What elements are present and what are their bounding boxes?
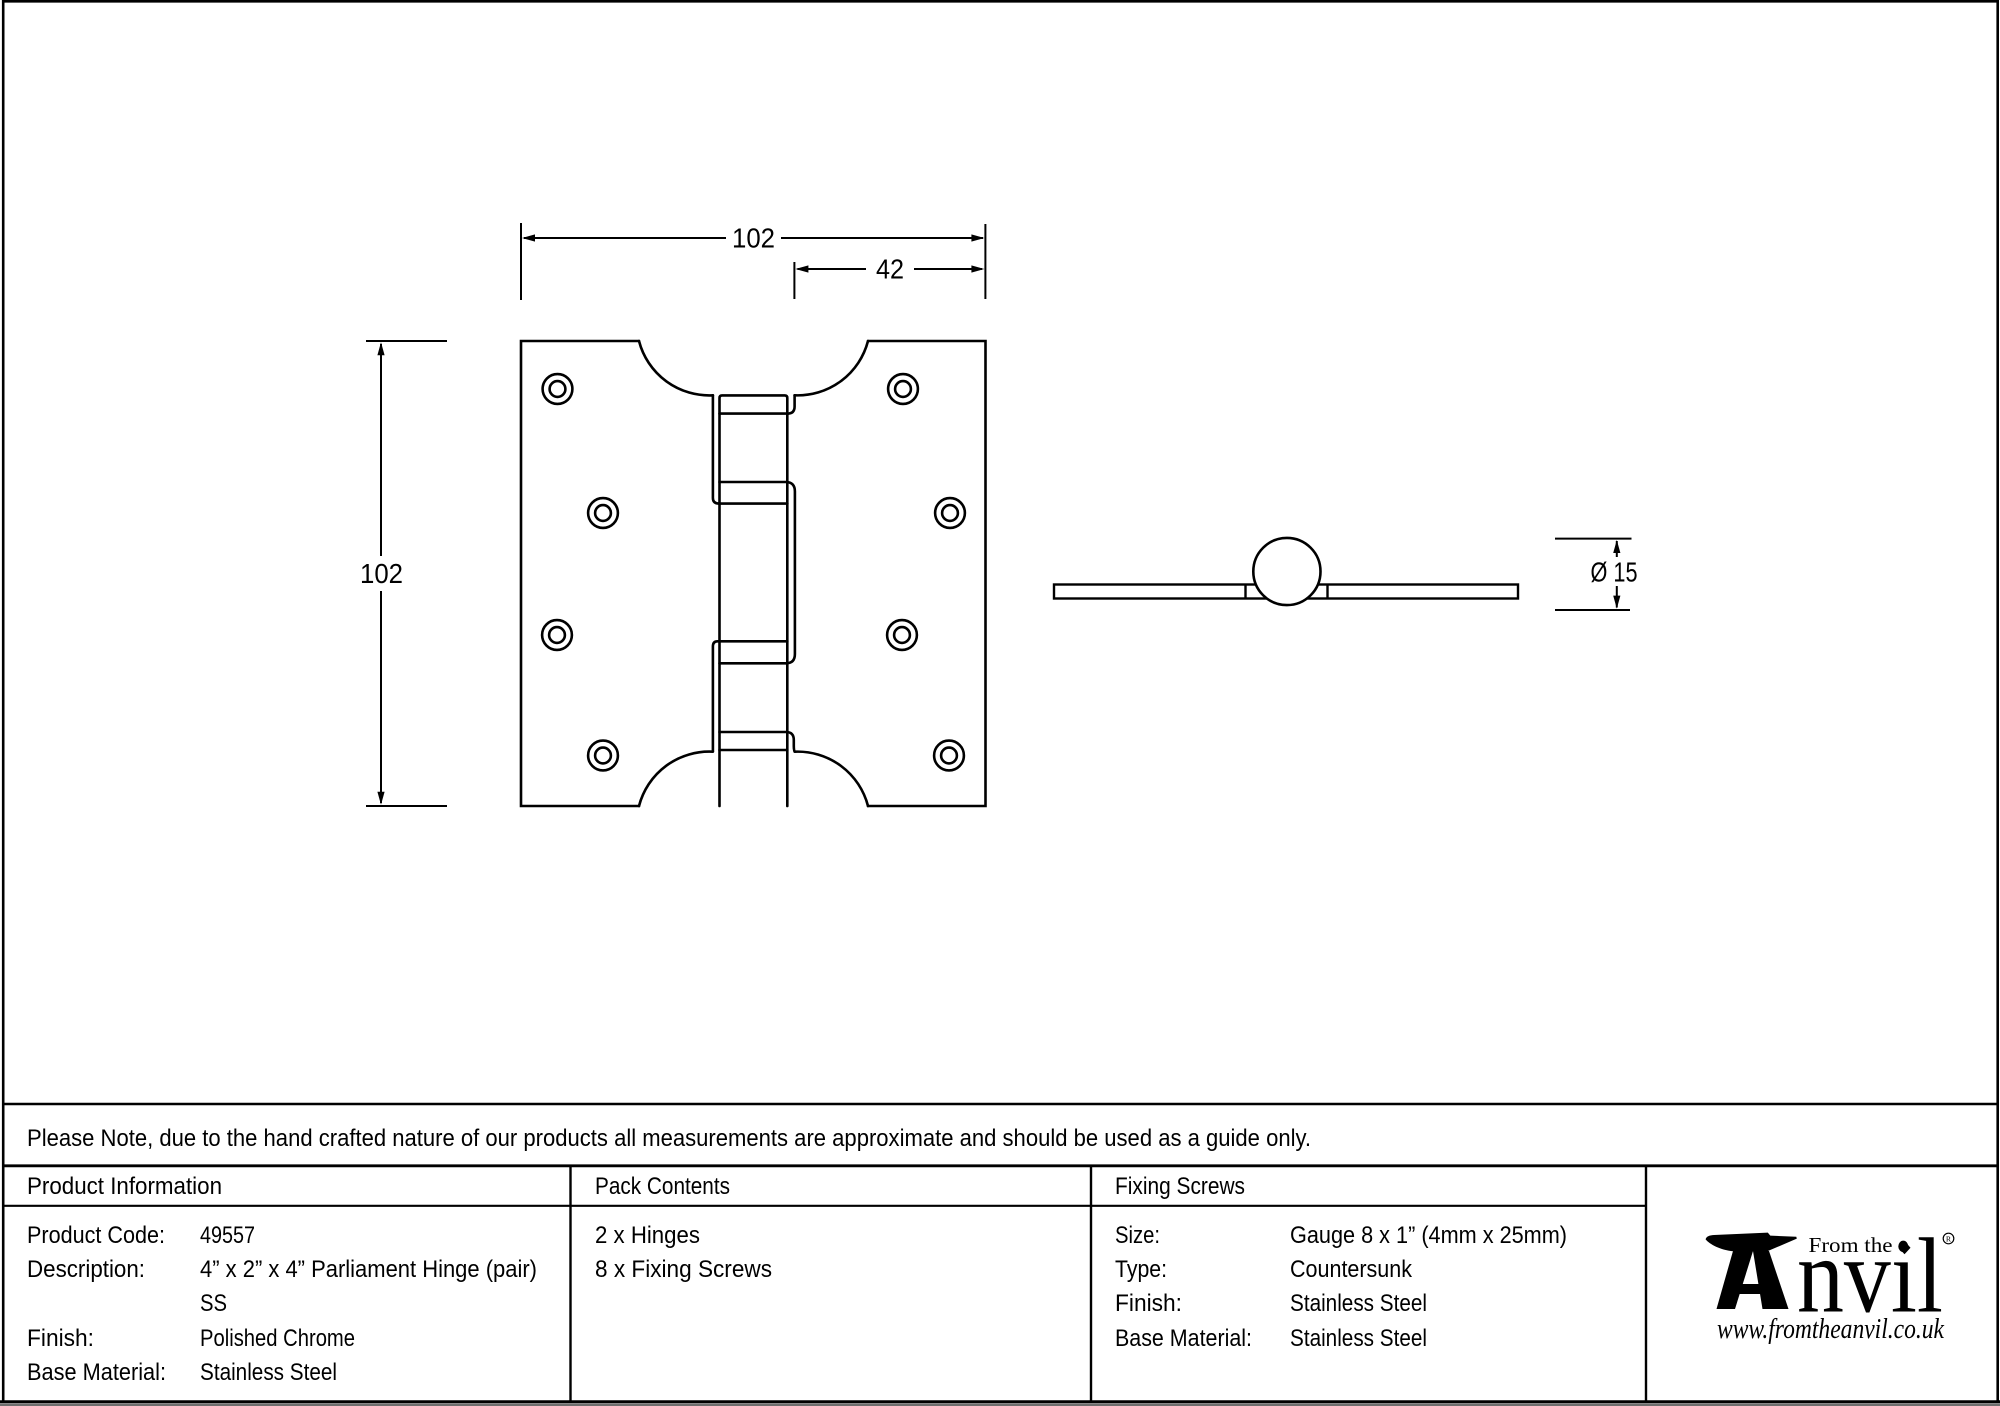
svg-text:8 x Fixing Screws: 8 x Fixing Screws [595,1256,772,1283]
svg-text:Gauge 8 x 1” (4mm x 25mm): Gauge 8 x 1” (4mm x 25mm) [1290,1222,1567,1249]
svg-text:42: 42 [876,254,904,285]
svg-text:Pack Contents: Pack Contents [595,1173,730,1200]
svg-text:Countersunk: Countersunk [1290,1256,1413,1283]
svg-text:Please Note, due to the hand c: Please Note, due to the hand crafted nat… [27,1125,1311,1152]
svg-text:Polished Chrome: Polished Chrome [200,1325,355,1352]
svg-text:Description:: Description: [27,1256,145,1283]
svg-text:4” x 2” x 4” Parliament Hinge: 4” x 2” x 4” Parliament Hinge (pair) [200,1256,537,1283]
svg-text:Size:: Size: [1115,1222,1160,1249]
svg-text:Ø 15: Ø 15 [1591,557,1638,588]
svg-text:R: R [1946,1234,1952,1243]
svg-text:Stainless Steel: Stainless Steel [200,1359,337,1386]
svg-text:Stainless Steel: Stainless Steel [1290,1290,1427,1317]
svg-text:Base Material:: Base Material: [27,1359,166,1386]
svg-text:www.fromtheanvil.co.uk: www.fromtheanvil.co.uk [1717,1313,1945,1345]
svg-text:Product Information: Product Information [27,1173,222,1200]
svg-text:Product Code:: Product Code: [27,1222,165,1249]
svg-text:Finish:: Finish: [27,1325,94,1352]
svg-text:Base Material:: Base Material: [1115,1325,1252,1352]
svg-text:102: 102 [360,558,403,589]
svg-text:Stainless Steel: Stainless Steel [1290,1325,1427,1352]
svg-text:Finish:: Finish: [1115,1290,1182,1317]
svg-text:Type:: Type: [1115,1256,1167,1283]
svg-text:SS: SS [200,1290,227,1317]
svg-text:49557: 49557 [200,1222,255,1249]
svg-text:Fixing Screws: Fixing Screws [1115,1173,1245,1200]
svg-text:2 x Hinges: 2 x Hinges [595,1222,700,1249]
svg-text:102: 102 [732,223,775,254]
